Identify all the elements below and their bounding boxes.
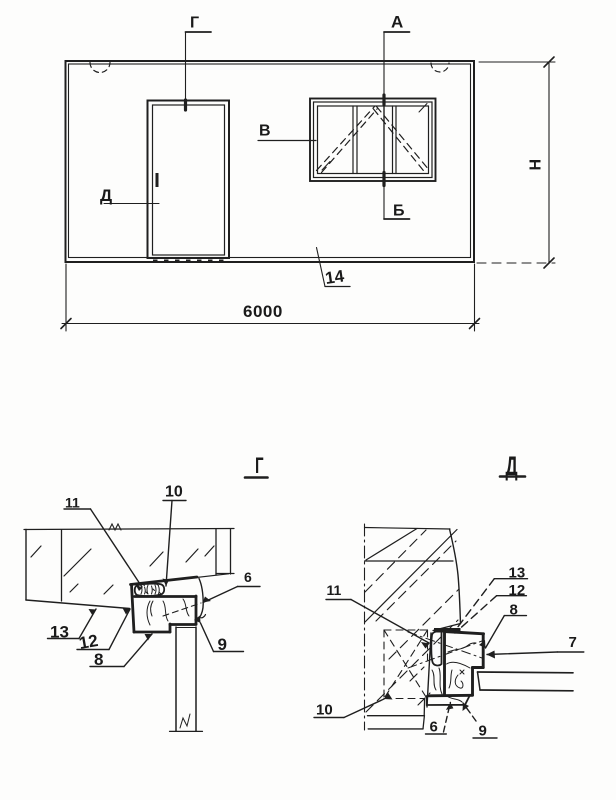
svg-text:10: 10 [316, 702, 333, 719]
svg-text:10: 10 [165, 484, 183, 501]
svg-text:А: А [391, 13, 403, 32]
svg-text:8: 8 [510, 602, 518, 619]
svg-text:13: 13 [50, 623, 69, 642]
svg-text:6: 6 [430, 719, 438, 736]
svg-text:8: 8 [94, 650, 103, 669]
svg-text:9: 9 [479, 723, 487, 740]
svg-text:11: 11 [327, 582, 342, 598]
svg-text:7: 7 [569, 634, 577, 651]
svg-text:Г: Г [190, 15, 199, 32]
svg-text:13: 13 [509, 565, 526, 582]
svg-text:Г: Г [255, 454, 264, 478]
svg-text:Д: Д [100, 186, 112, 205]
svg-text:6000: 6000 [243, 302, 283, 321]
svg-text:Н: Н [528, 159, 545, 171]
svg-text:12: 12 [509, 582, 526, 599]
svg-text:В: В [259, 123, 271, 140]
svg-text:11: 11 [65, 495, 80, 511]
svg-text:Б: Б [393, 203, 405, 220]
svg-text:14: 14 [324, 266, 346, 288]
svg-text:6: 6 [244, 569, 252, 585]
svg-text:9: 9 [218, 635, 227, 654]
